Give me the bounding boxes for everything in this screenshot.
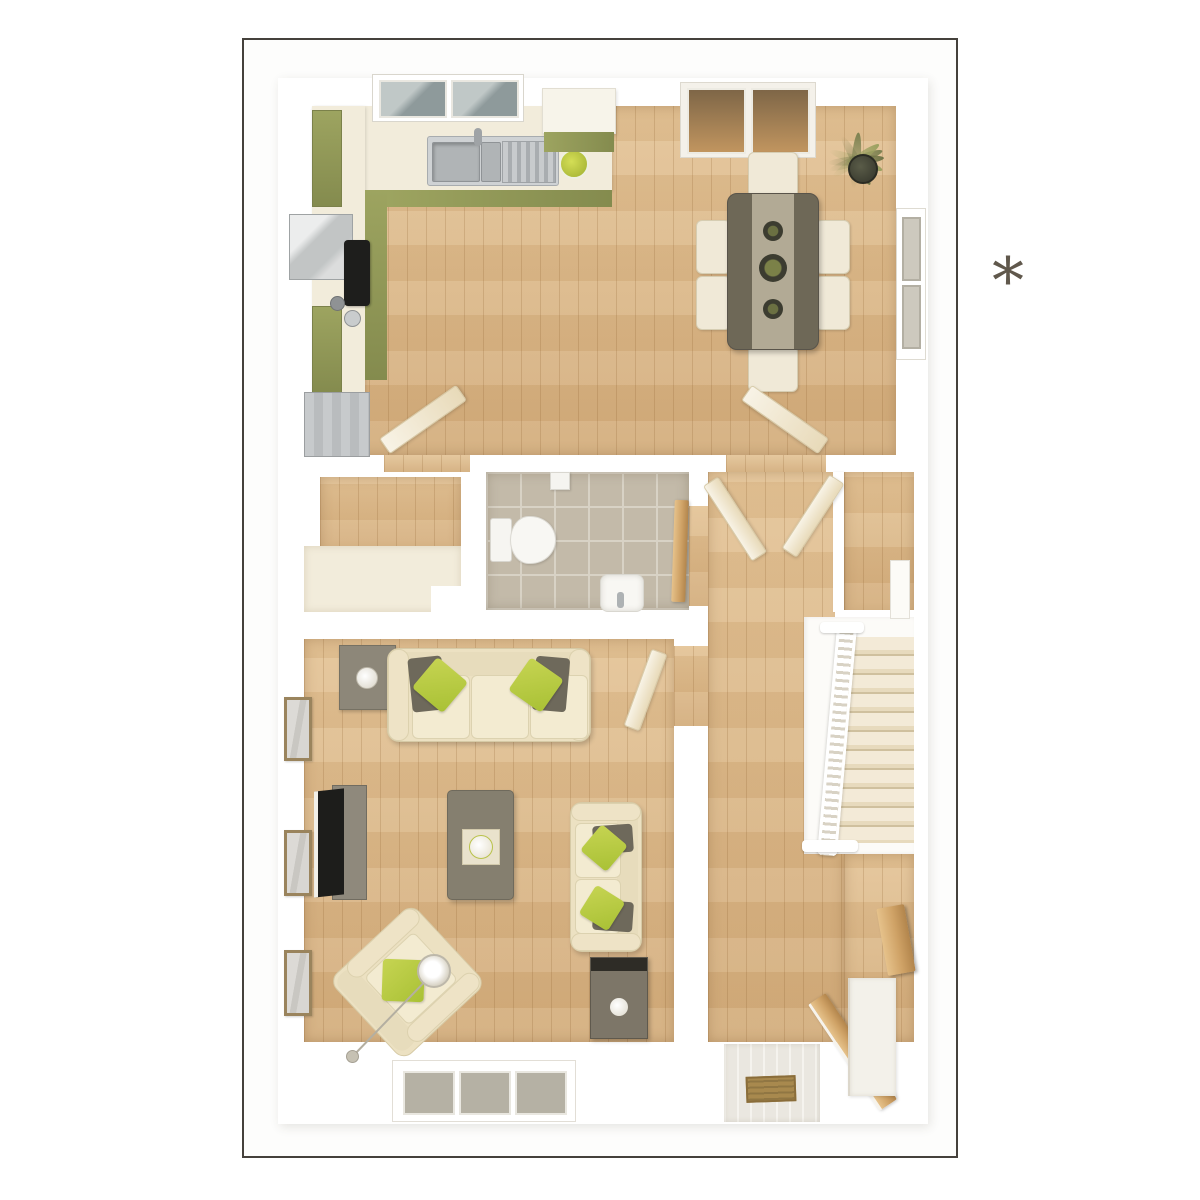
kitchen-cabinet-strip [312, 306, 342, 394]
dining-window-pane [902, 285, 921, 349]
sink-tap [474, 128, 482, 146]
french-door-pane [751, 88, 810, 154]
skylight-pane [451, 80, 519, 118]
opening-kitchen-storage [384, 455, 470, 472]
dining-chair-foot [748, 346, 798, 392]
picture-frame [284, 697, 312, 761]
sofa-arm-left [388, 649, 409, 741]
floorplan-image [242, 38, 958, 1158]
kitchen-cabinet-corner [312, 110, 342, 207]
dining-chair-right-2 [815, 276, 850, 330]
opening-dining-hall [726, 455, 826, 472]
centerpiece [759, 254, 787, 282]
floor-lamp-base [346, 1050, 359, 1063]
kitchen-upper-cabinet-front [544, 132, 614, 152]
dining-chair-left-2 [696, 276, 731, 330]
dining-chair-left-1 [696, 220, 731, 274]
kitchen-appliance [304, 392, 370, 457]
opening-bathroom-hall [689, 506, 708, 606]
dining-table [727, 193, 819, 350]
toilet-cistern [490, 518, 512, 562]
kitchen-upper-cabinet [542, 88, 616, 134]
side-table-bottom-top-band [591, 958, 647, 971]
dining-chair-right-1 [815, 220, 850, 274]
storage-notch [431, 586, 461, 612]
living-window-pane [515, 1071, 567, 1115]
kitchen-skylight [372, 74, 524, 122]
living-window-pane [459, 1071, 511, 1115]
picture-frame [284, 830, 312, 896]
opening-hall-living [674, 646, 708, 726]
picture-frame [284, 950, 312, 1016]
storage-floor [320, 477, 461, 554]
dining-window [896, 208, 926, 360]
plant-pot [848, 154, 878, 184]
skylight-pane [379, 80, 447, 118]
living-window-pane [403, 1071, 455, 1115]
dining-chair-head [748, 152, 798, 198]
floor-lamp-shade [417, 954, 451, 988]
coffee-table [447, 790, 514, 900]
sink-basin-large [432, 142, 480, 182]
living-room-window [392, 1060, 576, 1122]
loveseat-arm-top [571, 803, 641, 821]
hob [344, 240, 370, 306]
fruit-bowl [559, 149, 589, 179]
pot [344, 310, 361, 327]
doormat [746, 1075, 797, 1103]
kettle [330, 296, 345, 311]
kitchen-sink [427, 136, 559, 186]
landing-door [890, 560, 910, 619]
side-table-bottom [590, 957, 648, 1039]
toilet-roll-holder [550, 472, 570, 490]
side-table-bottom-bowl [610, 998, 628, 1016]
coffee-table-bowl [469, 835, 493, 859]
loveseat-arm-bottom [571, 933, 641, 951]
tv-screen [314, 788, 344, 897]
centerpiece [763, 221, 783, 241]
kitchen-counter-front-top [387, 190, 612, 207]
centerpiece [763, 299, 783, 319]
footnote-asterisk: * [976, 250, 1040, 314]
dining-window-pane [902, 217, 921, 281]
banister-bottom-cap [802, 840, 858, 852]
french-door [680, 82, 816, 158]
french-door-pane [687, 88, 746, 154]
potted-plant [822, 128, 892, 198]
basin-tap [617, 592, 624, 608]
banister-top-cap [820, 622, 864, 633]
sofa [387, 648, 591, 742]
console-table [848, 978, 896, 1096]
loveseat [570, 802, 642, 952]
table-lamp [356, 667, 378, 689]
sink-basin-small [481, 142, 501, 182]
